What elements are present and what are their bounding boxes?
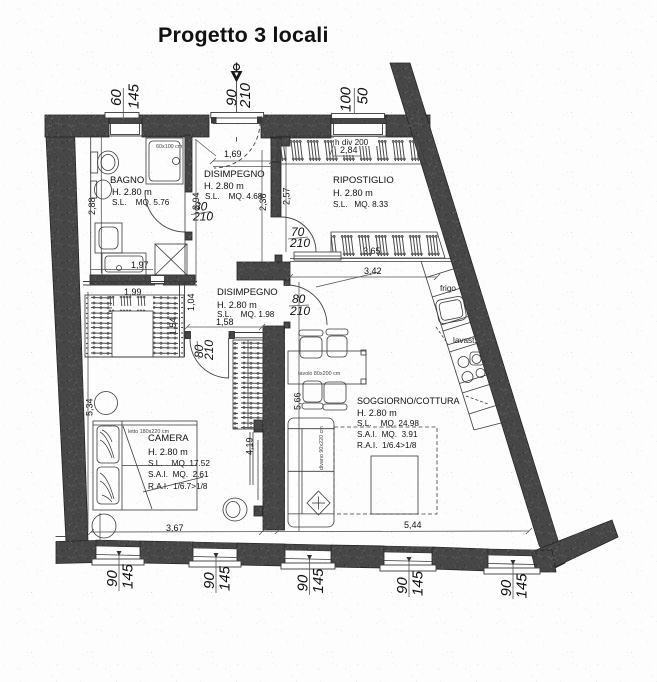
svg-text:60: 60 — [108, 89, 125, 106]
svg-text:Progetto 3 locali: Progetto 3 locali — [158, 23, 329, 47]
svg-text:SOGGIORNO/COTTURA: SOGGIORNO/COTTURA — [357, 396, 460, 406]
svg-text:60x100 cm: 60x100 cm — [156, 144, 183, 150]
svg-text:5,66: 5,66 — [293, 392, 303, 410]
svg-text:DISIMPEGNO: DISIMPEGNO — [204, 169, 265, 180]
svg-text:frigo: frigo — [440, 284, 456, 293]
svg-text:5,44: 5,44 — [404, 520, 422, 530]
svg-text:145: 145 — [119, 563, 136, 589]
svg-text:H. 2.80 m: H. 2.80 m — [333, 188, 373, 198]
svg-text:DISIMPEGNO: DISIMPEGNO — [217, 287, 278, 298]
svg-text:210: 210 — [237, 82, 254, 109]
svg-text:H. 2.80 m: H. 2.80 m — [204, 181, 244, 191]
svg-text:S.L. MQ. 5.76: S.L. MQ. 5.76 — [112, 198, 170, 207]
svg-text:145: 145 — [310, 568, 327, 594]
svg-text:1,69: 1,69 — [224, 149, 242, 159]
svg-text:H. 2.80 m: H. 2.80 m — [217, 300, 257, 310]
svg-text:S.A.I. MQ. 3.91: S.A.I. MQ. 3.91 — [357, 430, 418, 439]
svg-text:R.A.I. 1/6.4>1/8: R.A.I. 1/6.4>1/8 — [357, 441, 417, 450]
svg-text:2,36: 2,36 — [258, 193, 268, 211]
svg-text:5,34: 5,34 — [85, 398, 95, 416]
svg-text:1,04: 1,04 — [186, 293, 196, 311]
svg-text:H. 2.80 m: H. 2.80 m — [112, 187, 152, 197]
svg-text:210: 210 — [202, 340, 216, 361]
svg-text:lavast.: lavast. — [453, 336, 477, 345]
svg-text:1,99: 1,99 — [124, 287, 142, 297]
svg-text:2,88: 2,88 — [87, 197, 97, 215]
svg-text:S.L. MQ. 4.68: S.L. MQ. 4.68 — [205, 192, 263, 201]
svg-text:BAGNO: BAGNO — [110, 175, 144, 186]
svg-text:h div 200: h div 200 — [335, 138, 369, 147]
svg-text:S.L. MQ. 8.33: S.L. MQ. 8.33 — [333, 200, 389, 209]
svg-text:divano 90x220 cm: divano 90x220 cm — [319, 426, 325, 470]
svg-text:145: 145 — [409, 570, 426, 596]
svg-text:RIPOSTIGLIO: RIPOSTIGLIO — [333, 175, 394, 186]
svg-text:tavolo 80x200 cm: tavolo 80x200 cm — [298, 371, 341, 377]
svg-text:S.L. MQ. 17.52: S.L. MQ. 17.52 — [148, 459, 210, 468]
svg-text:145: 145 — [126, 83, 143, 109]
svg-text:3,42: 3,42 — [364, 266, 382, 276]
svg-text:2,57: 2,57 — [282, 187, 292, 205]
svg-text:100: 100 — [338, 86, 355, 112]
svg-text:1,58: 1,58 — [216, 317, 234, 327]
svg-text:145: 145 — [513, 573, 530, 599]
svg-text:H. 2.80 m: H. 2.80 m — [357, 408, 397, 418]
svg-text:50: 50 — [355, 87, 372, 104]
svg-text:145: 145 — [216, 565, 233, 591]
svg-text:letto 180x220 cm: letto 180x220 cm — [128, 429, 170, 435]
svg-text:H. 2.80 m: H. 2.80 m — [148, 447, 188, 457]
